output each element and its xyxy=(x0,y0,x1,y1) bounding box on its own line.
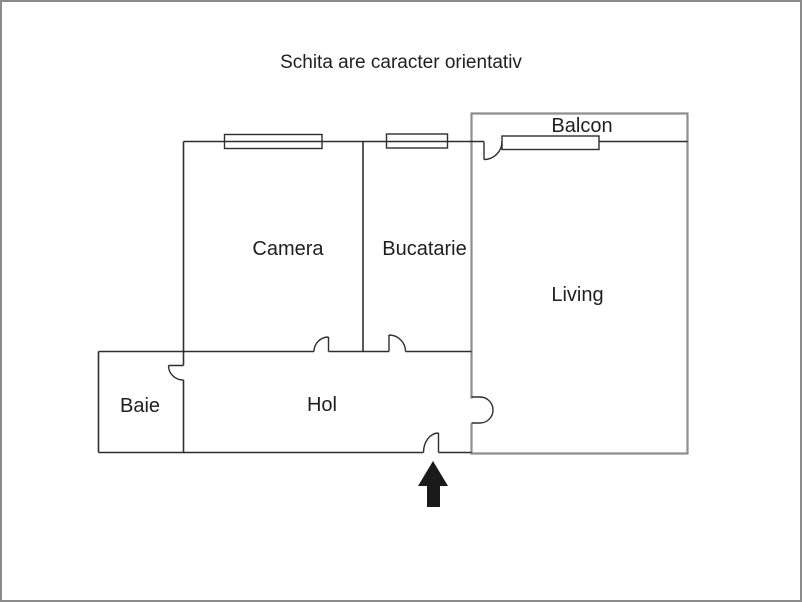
floor-plan-page: Schita are caracter orientativ Camera Bu… xyxy=(0,0,802,602)
room-label-balcon: Balcon xyxy=(551,115,612,137)
door-entrance xyxy=(424,433,439,453)
floor-plan: Schita are caracter orientativ Camera Bu… xyxy=(2,2,800,600)
page-title: Schita are caracter orientativ xyxy=(280,52,522,73)
room-label-baie: Baie xyxy=(120,395,160,417)
door-bucatarie xyxy=(389,335,406,352)
room-label-bucatarie: Bucatarie xyxy=(382,238,467,260)
door-living xyxy=(472,397,494,423)
door-baie xyxy=(168,366,183,381)
window-living xyxy=(502,136,599,150)
entrance-arrow-icon xyxy=(418,461,448,507)
room-label-camera: Camera xyxy=(252,238,324,260)
room-label-living: Living xyxy=(551,284,603,306)
door-balcon xyxy=(484,142,502,160)
room-label-hol: Hol xyxy=(307,394,337,416)
door-camera xyxy=(314,337,329,352)
